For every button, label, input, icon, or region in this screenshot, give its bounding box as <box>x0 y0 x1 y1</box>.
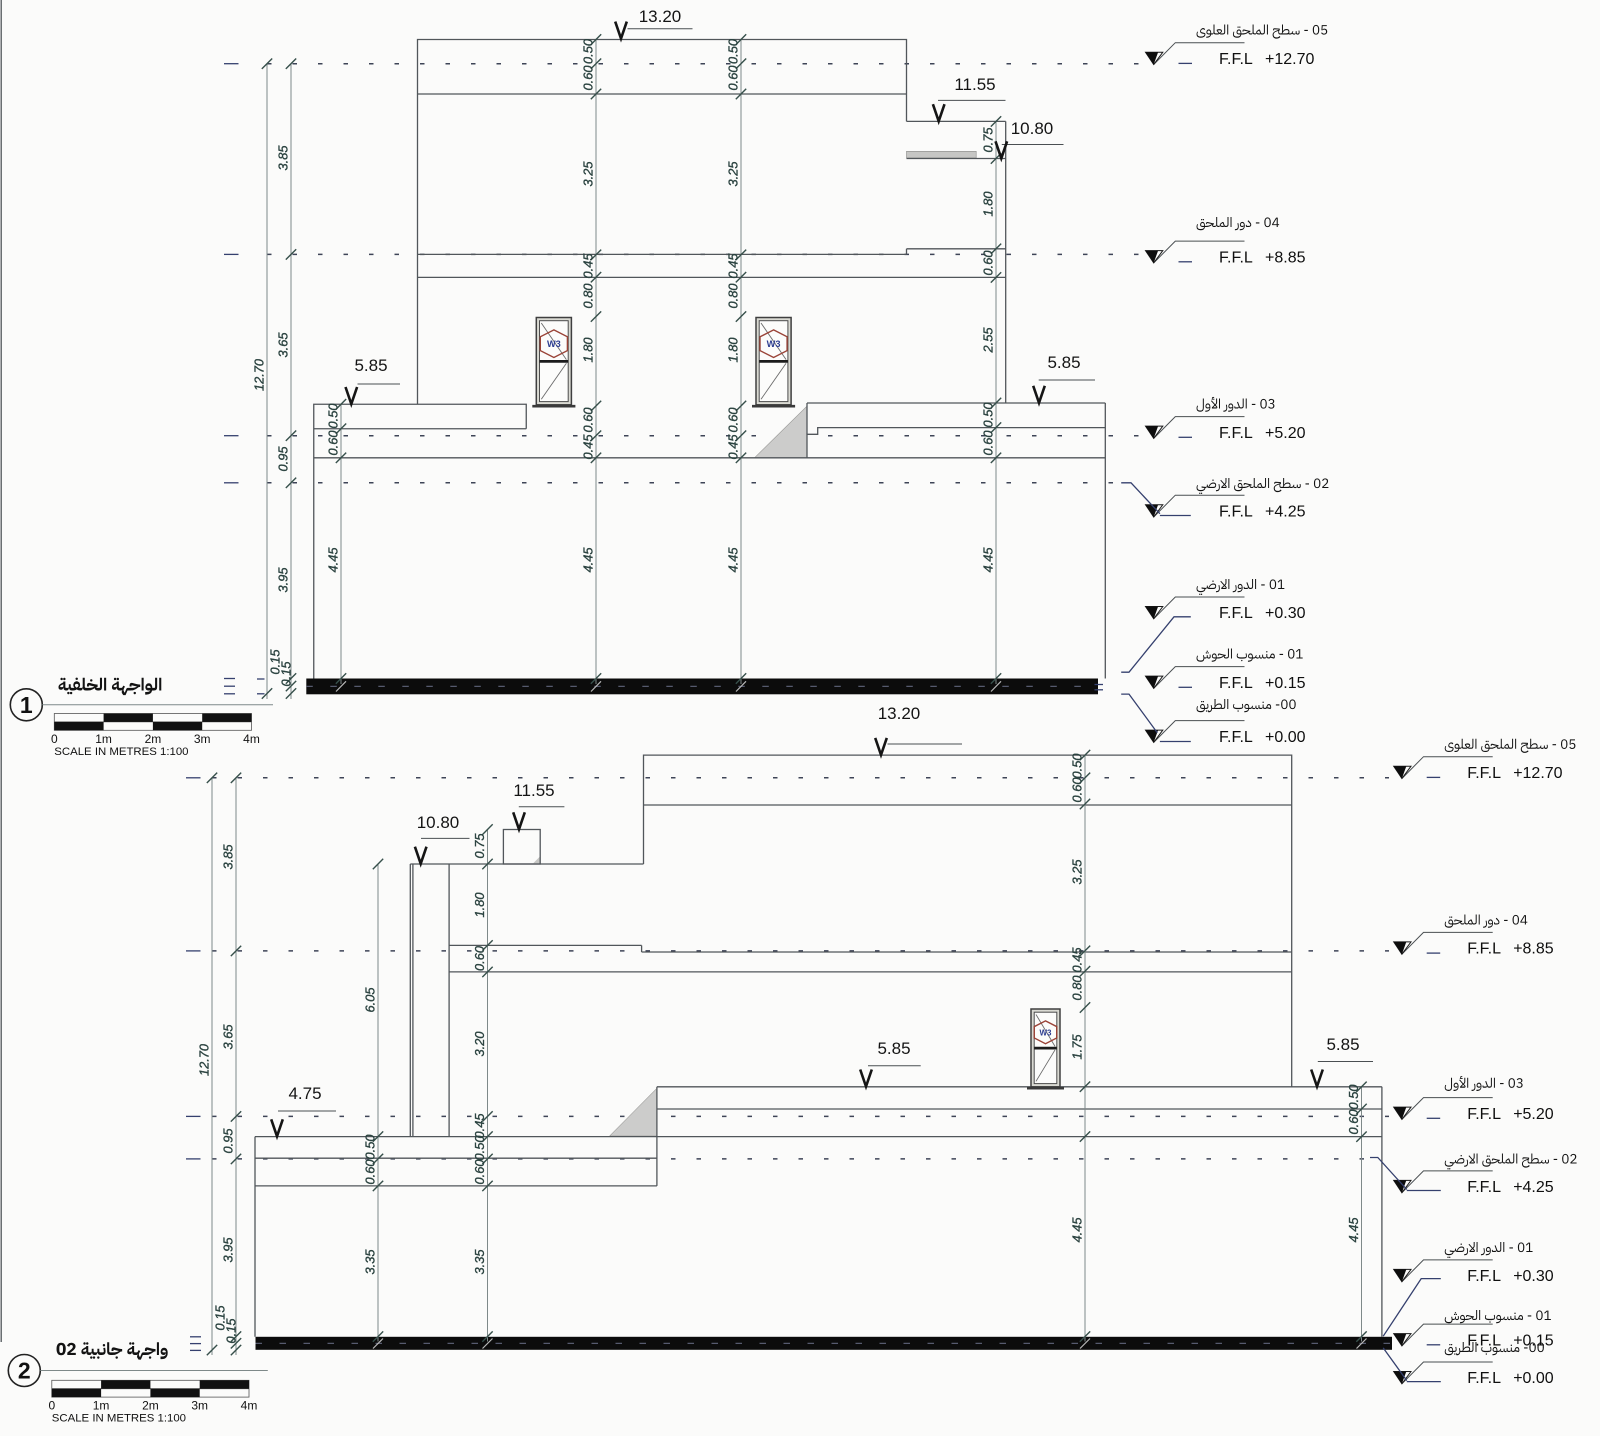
svg-text:0.15: 0.15 <box>279 661 294 687</box>
svg-text:3.95: 3.95 <box>221 1237 236 1263</box>
svg-text:3m: 3m <box>191 1399 208 1413</box>
svg-text:4m: 4m <box>243 732 260 746</box>
svg-text:4.45: 4.45 <box>726 547 741 573</box>
svg-text:+5.20: +5.20 <box>1265 425 1306 442</box>
svg-text:2: 2 <box>18 1358 31 1384</box>
svg-text:0.60: 0.60 <box>1070 777 1085 803</box>
svg-text:0.50: 0.50 <box>472 1135 487 1161</box>
svg-text:W3: W3 <box>767 339 781 349</box>
svg-text:0: 0 <box>51 732 58 746</box>
svg-text:3.20: 3.20 <box>472 1031 487 1057</box>
svg-text:0.75: 0.75 <box>981 127 996 153</box>
svg-text:0.60: 0.60 <box>981 250 996 276</box>
svg-text:F.F.L: F.F.L <box>1467 1370 1501 1387</box>
svg-text:2m: 2m <box>145 732 162 746</box>
svg-text:+0.00: +0.00 <box>1265 729 1306 746</box>
svg-text:0.15: 0.15 <box>224 1318 239 1344</box>
svg-text:+8.85: +8.85 <box>1513 941 1554 958</box>
svg-text:4.45: 4.45 <box>1346 1217 1361 1243</box>
svg-text:1.75: 1.75 <box>1070 1034 1085 1060</box>
svg-text:0.45: 0.45 <box>472 1113 487 1139</box>
svg-text:+12.70: +12.70 <box>1513 765 1562 782</box>
svg-text:3.85: 3.85 <box>276 145 291 171</box>
svg-text:13.20: 13.20 <box>878 704 921 723</box>
svg-text:3.25: 3.25 <box>581 161 596 187</box>
svg-text:0.60: 0.60 <box>326 430 341 456</box>
svg-text:0.80: 0.80 <box>1070 975 1085 1001</box>
svg-text:0.95: 0.95 <box>276 446 291 472</box>
svg-text:F.F.L: F.F.L <box>1219 503 1253 520</box>
svg-text:0.60: 0.60 <box>363 1159 378 1185</box>
svg-text:5.85: 5.85 <box>1326 1035 1359 1054</box>
svg-text:F.F.L: F.F.L <box>1467 941 1501 958</box>
svg-text:4m: 4m <box>241 1399 258 1413</box>
svg-text:F.F.L: F.F.L <box>1467 1106 1501 1123</box>
svg-text:1m: 1m <box>95 732 112 746</box>
svg-text:3.65: 3.65 <box>276 332 291 358</box>
svg-text:0.60: 0.60 <box>472 1159 487 1185</box>
svg-text:0.50: 0.50 <box>1070 753 1085 779</box>
svg-text:0.45: 0.45 <box>581 434 596 460</box>
svg-text:SCALE IN METRES 1:100: SCALE IN METRES 1:100 <box>52 1413 186 1425</box>
svg-text:+0.30: +0.30 <box>1513 1268 1554 1285</box>
svg-text:0: 0 <box>48 1399 55 1413</box>
svg-text:1: 1 <box>20 692 33 718</box>
svg-text:5.85: 5.85 <box>1047 353 1080 372</box>
svg-text:+12.70: +12.70 <box>1265 51 1314 68</box>
svg-text:F.F.L: F.F.L <box>1219 605 1253 622</box>
svg-text:13.20: 13.20 <box>639 7 682 26</box>
svg-text:1.80: 1.80 <box>472 892 487 918</box>
svg-text:0.50: 0.50 <box>1346 1084 1361 1110</box>
svg-text:0.60: 0.60 <box>581 65 596 91</box>
svg-text:3.35: 3.35 <box>472 1249 487 1275</box>
svg-text:F.F.L: F.F.L <box>1467 765 1501 782</box>
svg-text:12.70: 12.70 <box>252 358 267 391</box>
svg-text:0.80: 0.80 <box>581 283 596 309</box>
svg-text:5.85: 5.85 <box>354 356 387 375</box>
svg-text:5.85: 5.85 <box>877 1039 910 1058</box>
svg-text:0.50: 0.50 <box>326 403 341 429</box>
svg-text:0.50: 0.50 <box>981 402 996 428</box>
svg-text:3.65: 3.65 <box>221 1024 236 1050</box>
svg-text:10.80: 10.80 <box>1011 119 1054 138</box>
svg-text:+4.25: +4.25 <box>1513 1179 1554 1196</box>
svg-text:4.45: 4.45 <box>326 547 341 573</box>
svg-text:0.50: 0.50 <box>363 1134 378 1160</box>
svg-text:+0.00: +0.00 <box>1513 1370 1554 1387</box>
svg-text:3.85: 3.85 <box>221 844 236 870</box>
svg-text:0.45: 0.45 <box>581 253 596 279</box>
svg-text:0.45: 0.45 <box>1070 947 1085 973</box>
svg-text:10.80: 10.80 <box>417 813 460 832</box>
svg-text:3.25: 3.25 <box>726 161 741 187</box>
svg-text:1.80: 1.80 <box>981 191 996 217</box>
svg-text:2.55: 2.55 <box>981 327 996 354</box>
svg-text:0.60: 0.60 <box>726 65 741 91</box>
svg-text:+4.25: +4.25 <box>1265 503 1306 520</box>
svg-text:1.80: 1.80 <box>726 337 741 363</box>
svg-text:0.45: 0.45 <box>726 253 741 279</box>
svg-text:0.60: 0.60 <box>581 407 596 433</box>
svg-text:0.75: 0.75 <box>472 833 487 859</box>
svg-text:SCALE IN METRES 1:100: SCALE IN METRES 1:100 <box>54 746 188 758</box>
svg-text:4.75: 4.75 <box>288 1084 321 1103</box>
svg-text:+5.20: +5.20 <box>1513 1106 1554 1123</box>
svg-text:11.55: 11.55 <box>954 75 995 94</box>
svg-text:4.45: 4.45 <box>981 547 996 573</box>
svg-text:F.F.L: F.F.L <box>1467 1179 1501 1196</box>
svg-text:0.50: 0.50 <box>726 38 741 64</box>
svg-text:F.F.L: F.F.L <box>1219 51 1253 68</box>
svg-text:+0.30: +0.30 <box>1265 605 1306 622</box>
svg-text:W3: W3 <box>1040 1029 1053 1038</box>
svg-text:1m: 1m <box>93 1399 110 1413</box>
svg-text:+0.15: +0.15 <box>1513 1332 1554 1349</box>
svg-text:4.45: 4.45 <box>581 547 596 573</box>
svg-text:0.60: 0.60 <box>981 430 996 456</box>
svg-text:11.55: 11.55 <box>513 781 554 800</box>
svg-text:0.60: 0.60 <box>472 945 487 971</box>
svg-text:3.95: 3.95 <box>276 567 291 593</box>
svg-text:F.F.L: F.F.L <box>1219 675 1253 692</box>
svg-text:3m: 3m <box>194 732 211 746</box>
svg-text:0.80: 0.80 <box>726 283 741 309</box>
svg-text:W3: W3 <box>547 339 561 349</box>
svg-text:1.80: 1.80 <box>581 337 596 363</box>
svg-text:+8.85: +8.85 <box>1265 249 1306 266</box>
svg-text:+0.15: +0.15 <box>1265 675 1306 692</box>
svg-text:F.F.L: F.F.L <box>1467 1268 1501 1285</box>
svg-text:4.45: 4.45 <box>1070 1217 1085 1243</box>
svg-text:2m: 2m <box>142 1399 159 1413</box>
svg-text:3.35: 3.35 <box>363 1249 378 1275</box>
svg-text:0.95: 0.95 <box>221 1128 236 1154</box>
svg-text:F.F.L: F.F.L <box>1467 1332 1501 1349</box>
svg-text:F.F.L: F.F.L <box>1219 729 1253 746</box>
svg-text:0.60: 0.60 <box>726 407 741 433</box>
svg-text:0.50: 0.50 <box>581 38 596 64</box>
svg-text:6.05: 6.05 <box>363 987 378 1013</box>
svg-text:0.60: 0.60 <box>1346 1109 1361 1135</box>
svg-text:12.70: 12.70 <box>197 1043 212 1076</box>
svg-text:F.F.L: F.F.L <box>1219 425 1253 442</box>
svg-text:0.45: 0.45 <box>726 434 741 460</box>
svg-text:3.25: 3.25 <box>1070 859 1085 885</box>
svg-text:F.F.L: F.F.L <box>1219 249 1253 266</box>
